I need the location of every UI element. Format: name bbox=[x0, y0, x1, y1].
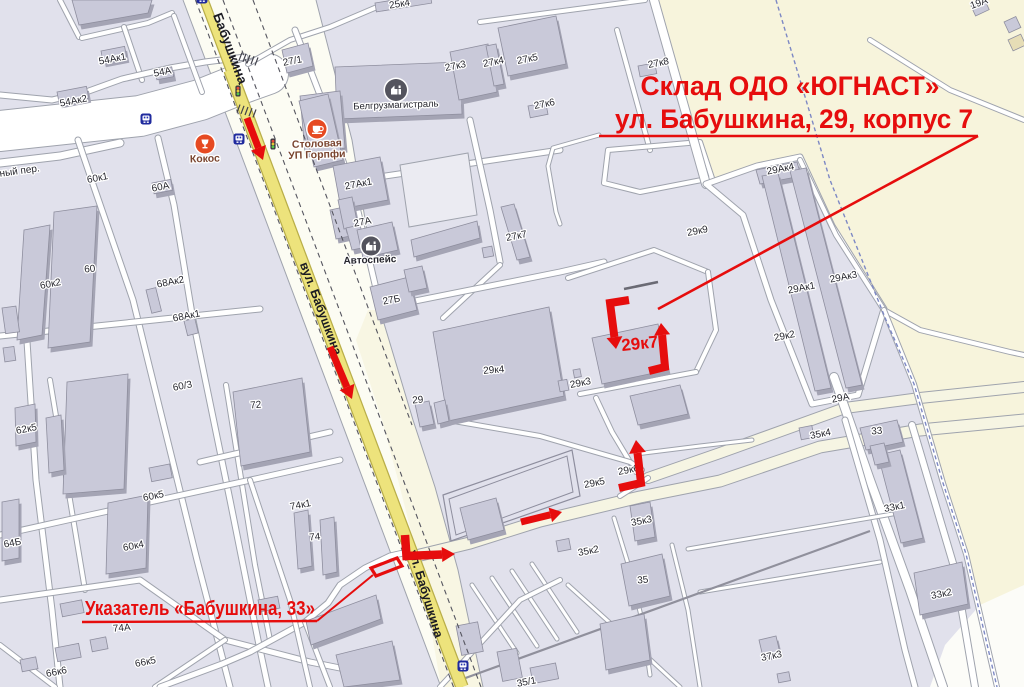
svg-text:ул. Бабушкина, 29, корпус 7: ул. Бабушкина, 29, корпус 7 bbox=[615, 104, 973, 134]
svg-text:35: 35 bbox=[637, 575, 649, 587]
svg-text:29к4: 29к4 bbox=[483, 364, 505, 377]
svg-text:60: 60 bbox=[84, 264, 96, 276]
svg-text:29к7: 29к7 bbox=[620, 332, 659, 355]
svg-text:Автоспейс: Автоспейс bbox=[343, 254, 397, 267]
svg-text:Кокос: Кокос bbox=[190, 152, 221, 165]
svg-text:Склад ОДО «ЮГНАСТ»: Склад ОДО «ЮГНАСТ» bbox=[641, 71, 940, 101]
svg-text:Указатель «Бабушкина, 33»: Указатель «Бабушкина, 33» bbox=[85, 597, 315, 620]
svg-text:УП Горпфи: УП Горпфи bbox=[288, 148, 346, 162]
svg-text:29: 29 bbox=[412, 395, 424, 407]
svg-text:33: 33 bbox=[871, 426, 883, 438]
svg-text:72: 72 bbox=[250, 400, 262, 412]
svg-text:74А: 74А bbox=[112, 622, 131, 635]
svg-text:74: 74 bbox=[309, 532, 321, 544]
